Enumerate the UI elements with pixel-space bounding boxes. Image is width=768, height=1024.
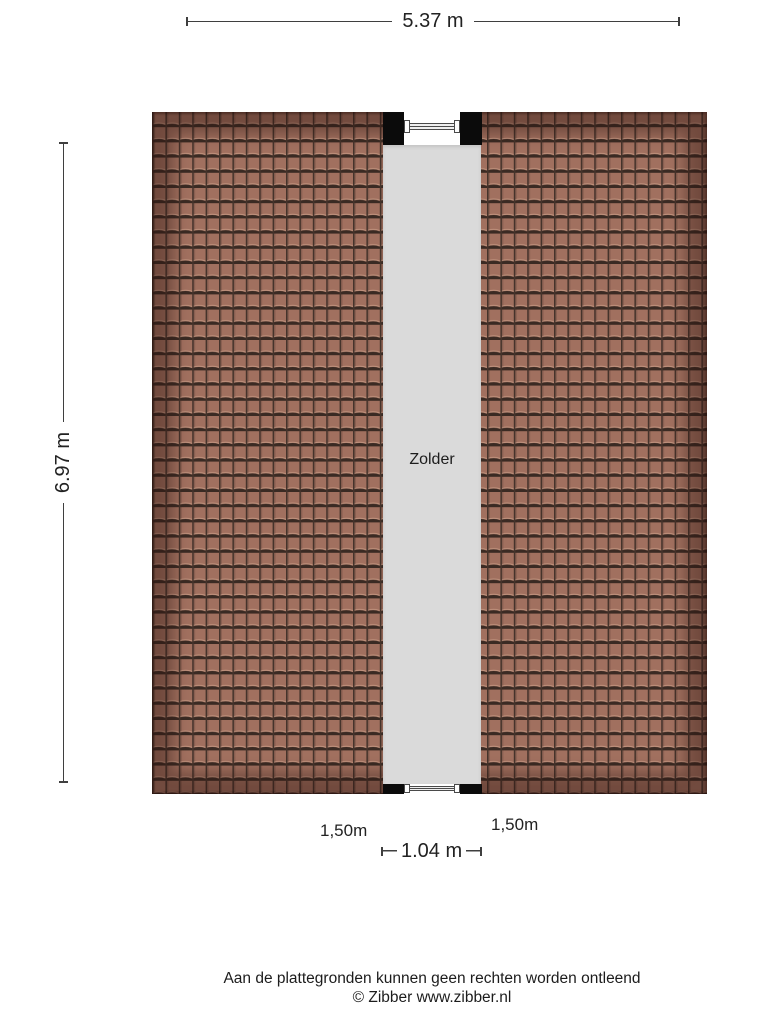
window-glazing-icon (409, 123, 455, 130)
dimension-line (188, 21, 392, 23)
dimension-width-label: 5.37 m (392, 10, 473, 33)
dimension-opening-label: 1.04 m (401, 840, 462, 863)
wall-segment-top-right (460, 112, 482, 145)
wall-segment-top-left (383, 112, 404, 145)
floorplan-attic: Zolder (152, 112, 707, 794)
dimension-height-total: 6.97 m (55, 142, 72, 783)
window-symbol-top (404, 120, 460, 133)
footer-disclaimer: Aan de plattegronden kunnen geen rechten… (102, 969, 762, 988)
dimension-height-label: 6.97 m (52, 422, 75, 503)
wall-segment-bottom-right (460, 784, 482, 794)
dimension-arrow-left-icon (381, 847, 397, 856)
dimension-width-total: 5.37 m (186, 13, 680, 30)
footer-copyright: © Zibber www.zibber.nl (102, 988, 762, 1007)
dimension-line (474, 21, 678, 23)
window-glazing-icon (409, 786, 455, 791)
window-post-icon (454, 120, 460, 133)
footer: Aan de plattegronden kunnen geen rechten… (102, 969, 762, 1007)
clearance-label-left: 1,50m (320, 821, 367, 841)
window-symbol-bottom (404, 784, 460, 793)
dimension-tick (678, 17, 680, 26)
window-post-icon (454, 784, 460, 793)
clearance-label-right: 1,50m (491, 815, 538, 835)
dimension-line (63, 503, 65, 781)
dimension-opening-width: 1.04 m (381, 841, 482, 861)
room-label: Zolder (383, 451, 481, 469)
attic-floor-strip: Zolder (383, 112, 481, 794)
dimension-arrow-right-icon (466, 847, 482, 856)
dimension-tick (59, 781, 68, 783)
dimension-line (63, 144, 65, 422)
wall-segment-bottom-left (383, 784, 404, 794)
